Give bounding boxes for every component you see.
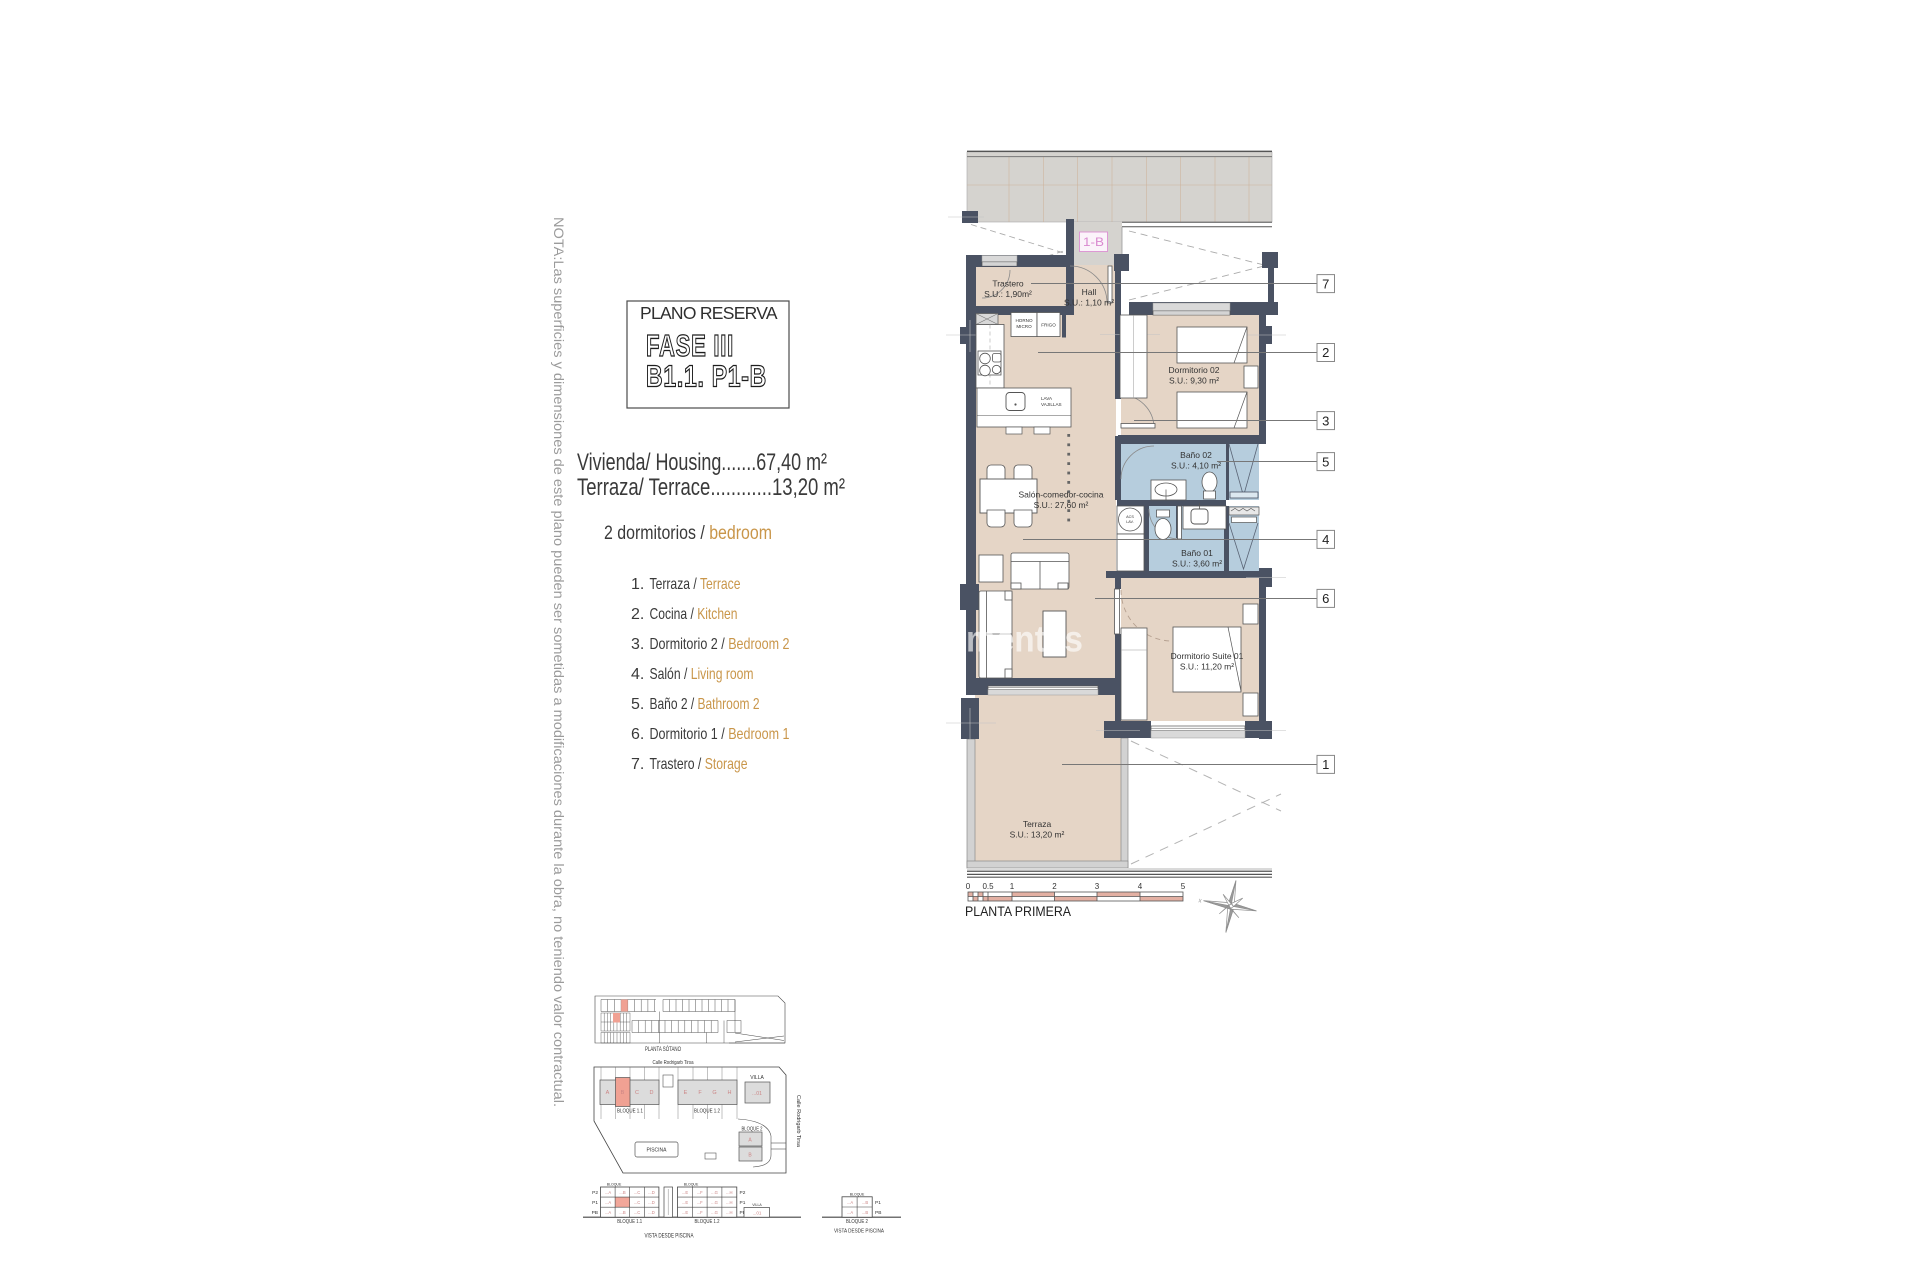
svg-text:PLANTA SÓTANO: PLANTA SÓTANO xyxy=(645,1046,681,1053)
svg-text:...D: ...D xyxy=(648,1190,655,1195)
svg-text:Salón-comedor-cocina: Salón-comedor-cocina xyxy=(1018,490,1103,500)
svg-text:...F: ...F xyxy=(697,1210,703,1215)
svg-text:4.: 4. xyxy=(631,666,644,683)
svg-text:...A: ...A xyxy=(847,1210,853,1215)
svg-text:...A: ...A xyxy=(605,1200,611,1205)
svg-text:...B: ...B xyxy=(862,1200,868,1205)
svg-text:BLOQUE 2: BLOQUE 2 xyxy=(846,1219,868,1225)
svg-text:2 dormitorios / bedroom: 2 dormitorios / bedroom xyxy=(604,523,772,544)
svg-text:...H: ...H xyxy=(726,1210,733,1215)
svg-text:Baño 2 / Bathroom 2: Baño 2 / Bathroom 2 xyxy=(650,696,760,713)
svg-text:BLOQUE 1.2: BLOQUE 1.2 xyxy=(695,1219,720,1225)
svg-text:S.U.: 13,20 m²: S.U.: 13,20 m² xyxy=(1010,830,1065,840)
svg-text:...C: ...C xyxy=(634,1210,641,1215)
svg-text:...H: ...H xyxy=(726,1200,733,1205)
svg-text:...A: ...A xyxy=(605,1190,611,1195)
svg-text:B: B xyxy=(621,1090,625,1096)
svg-text:5.: 5. xyxy=(631,696,644,713)
svg-text:7.: 7. xyxy=(631,756,644,773)
svg-text:...G: ...G xyxy=(711,1200,718,1205)
svg-text:HORNO: HORNO xyxy=(1015,318,1033,323)
svg-text:...F: ...F xyxy=(697,1200,703,1205)
svg-text:H: H xyxy=(728,1090,732,1096)
svg-text:C: C xyxy=(635,1090,639,1096)
svg-text:...G: ...G xyxy=(711,1210,718,1215)
svg-text:Baño 01: Baño 01 xyxy=(1181,548,1213,558)
svg-text:VISTA DESDE PISCINA: VISTA DESDE PISCINA xyxy=(834,1229,884,1235)
svg-text:...A: ...A xyxy=(605,1210,611,1215)
svg-text:FRIGO: FRIGO xyxy=(1041,323,1056,328)
svg-text:Calle Rodrigarb Tirsa: Calle Rodrigarb Tirsa xyxy=(795,1095,801,1148)
svg-text:P1: P1 xyxy=(875,1200,881,1206)
svg-text:BLOQUE 1.1: BLOQUE 1.1 xyxy=(617,1109,643,1115)
svg-text:P2: P2 xyxy=(740,1190,746,1196)
svg-text:BLOQUE 2: BLOQUE 2 xyxy=(742,1127,763,1133)
svg-text:LAVA: LAVA xyxy=(1041,396,1053,401)
svg-text:BLOQUE: BLOQUE xyxy=(607,1183,622,1187)
svg-text:Dormitorio 2 / Bedroom 2: Dormitorio 2 / Bedroom 2 xyxy=(650,636,790,653)
svg-text:Hall: Hall xyxy=(1082,287,1097,297)
svg-text:6: 6 xyxy=(1322,591,1329,606)
svg-text:...E: ...E xyxy=(682,1210,688,1215)
svg-text:S.U.: 1,10 m²: S.U.: 1,10 m² xyxy=(1064,298,1114,308)
svg-text:Terraza/ Terrace............13: Terraza/ Terrace............13,20 m² xyxy=(577,474,845,501)
svg-text:Dormitorio Suite 01: Dormitorio Suite 01 xyxy=(1171,651,1244,661)
svg-text:0.5: 0.5 xyxy=(982,882,994,891)
svg-text:2: 2 xyxy=(1322,345,1329,360)
svg-text:B1.1. P1-B: B1.1. P1-B xyxy=(646,359,767,394)
svg-text:...G: ...G xyxy=(711,1190,718,1195)
svg-text:G: G xyxy=(712,1090,716,1096)
svg-text:P2: P2 xyxy=(592,1190,598,1196)
svg-text:P1: P1 xyxy=(592,1200,598,1206)
svg-text:...E: ...E xyxy=(682,1200,688,1205)
svg-text:VISTA DESDE PISCINA: VISTA DESDE PISCINA xyxy=(645,1233,694,1240)
svg-text:7: 7 xyxy=(1322,276,1329,291)
svg-text:PISCINA: PISCINA xyxy=(646,1148,667,1154)
svg-text:BLOQUE 1.1: BLOQUE 1.1 xyxy=(617,1219,642,1225)
svg-text:VILLA: VILLA xyxy=(750,1075,764,1081)
svg-text:1: 1 xyxy=(1322,757,1329,772)
svg-text:6.: 6. xyxy=(631,726,644,743)
svg-text:5: 5 xyxy=(1322,454,1329,469)
svg-text:PB: PB xyxy=(875,1210,881,1216)
svg-text:...F: ...F xyxy=(697,1190,703,1195)
svg-text:...01: ...01 xyxy=(753,1211,762,1216)
svg-text:Trastero / Storage: Trastero / Storage xyxy=(650,756,748,773)
svg-text:...D: ...D xyxy=(648,1210,655,1215)
svg-text:PB: PB xyxy=(592,1210,598,1216)
svg-text:MICRO: MICRO xyxy=(1016,324,1032,329)
svg-text:1-B: 1-B xyxy=(1083,235,1104,249)
svg-text:BLOQUE: BLOQUE xyxy=(684,1183,699,1187)
svg-text:VAJILLAS: VAJILLAS xyxy=(1041,402,1062,407)
svg-text:4: 4 xyxy=(1322,532,1329,547)
svg-text:PLANO RESERVA: PLANO RESERVA xyxy=(640,303,778,323)
svg-text:2.: 2. xyxy=(631,606,644,623)
svg-text:BLOQUE 1.2: BLOQUE 1.2 xyxy=(694,1109,720,1115)
svg-text:Baño 02: Baño 02 xyxy=(1180,450,1212,460)
svg-text:...D: ...D xyxy=(648,1200,655,1205)
svg-text:Salón / Living room: Salón / Living room xyxy=(650,666,754,683)
svg-text:...01: ...01 xyxy=(752,1091,762,1097)
svg-text:E: E xyxy=(684,1090,688,1096)
svg-text:...B: ...B xyxy=(619,1190,625,1195)
svg-text:...C: ...C xyxy=(634,1190,641,1195)
svg-text:LAV.: LAV. xyxy=(1126,520,1134,524)
svg-text:D: D xyxy=(650,1090,654,1096)
svg-text:BLOQUE: BLOQUE xyxy=(850,1192,865,1196)
svg-text:S.U.: 11,20 m²: S.U.: 11,20 m² xyxy=(1180,662,1234,672)
svg-text:3: 3 xyxy=(1322,413,1329,428)
svg-text:5: 5 xyxy=(1181,882,1186,891)
svg-text:S.U.: 1,90m²: S.U.: 1,90m² xyxy=(984,289,1032,299)
svg-text:...E: ...E xyxy=(682,1190,688,1195)
svg-text:Vivienda/ Housing.......67,40: Vivienda/ Housing.......67,40 m² xyxy=(577,449,827,476)
svg-text:ACS: ACS xyxy=(1126,515,1134,519)
svg-text:mentes: mentes xyxy=(966,619,1083,660)
svg-text:0: 0 xyxy=(966,882,971,891)
svg-text:1: 1 xyxy=(1010,882,1015,891)
svg-text:S.U.: 9,30 m²: S.U.: 9,30 m² xyxy=(1169,376,1219,386)
svg-text:2: 2 xyxy=(1052,882,1057,891)
svg-text:S.U.: 3,60 m²: S.U.: 3,60 m² xyxy=(1172,559,1222,569)
svg-text:S.U.: 4,10 m²: S.U.: 4,10 m² xyxy=(1171,461,1221,471)
svg-text:NOTA:Las superficies y dimensi: NOTA:Las superficies y dimensiones de es… xyxy=(551,217,566,1107)
svg-text:Trastero: Trastero xyxy=(992,279,1024,289)
svg-text:...B: ...B xyxy=(862,1210,868,1215)
svg-text:...A: ...A xyxy=(847,1200,853,1205)
svg-text:3: 3 xyxy=(1095,882,1100,891)
svg-text:Terraza: Terraza xyxy=(1023,819,1052,829)
svg-text:Dormitorio 02: Dormitorio 02 xyxy=(1168,365,1219,375)
svg-text:...B: ...B xyxy=(619,1210,625,1215)
svg-text:A: A xyxy=(606,1090,610,1096)
svg-text:Terraza / Terrace: Terraza / Terrace xyxy=(650,576,741,593)
svg-text:Cocina / Kitchen: Cocina / Kitchen xyxy=(650,606,738,623)
svg-text:S.U.: 27,60 m²: S.U.: 27,60 m² xyxy=(1034,500,1089,510)
svg-text:Calle Rodrigarb Tirsa: Calle Rodrigarb Tirsa xyxy=(653,1060,695,1066)
svg-text:3.: 3. xyxy=(631,636,644,653)
svg-text:...C: ...C xyxy=(634,1200,641,1205)
svg-text:Dormitorio 1 / Bedroom 1: Dormitorio 1 / Bedroom 1 xyxy=(650,726,790,743)
svg-text:x: x xyxy=(1198,897,1203,905)
svg-text:VILLA: VILLA xyxy=(752,1203,762,1207)
svg-text:4: 4 xyxy=(1138,882,1143,891)
svg-text:1.: 1. xyxy=(631,576,644,593)
svg-text:PLANTA PRIMERA: PLANTA PRIMERA xyxy=(965,903,1072,919)
svg-text:...H: ...H xyxy=(726,1190,733,1195)
svg-text:P1: P1 xyxy=(740,1200,746,1206)
